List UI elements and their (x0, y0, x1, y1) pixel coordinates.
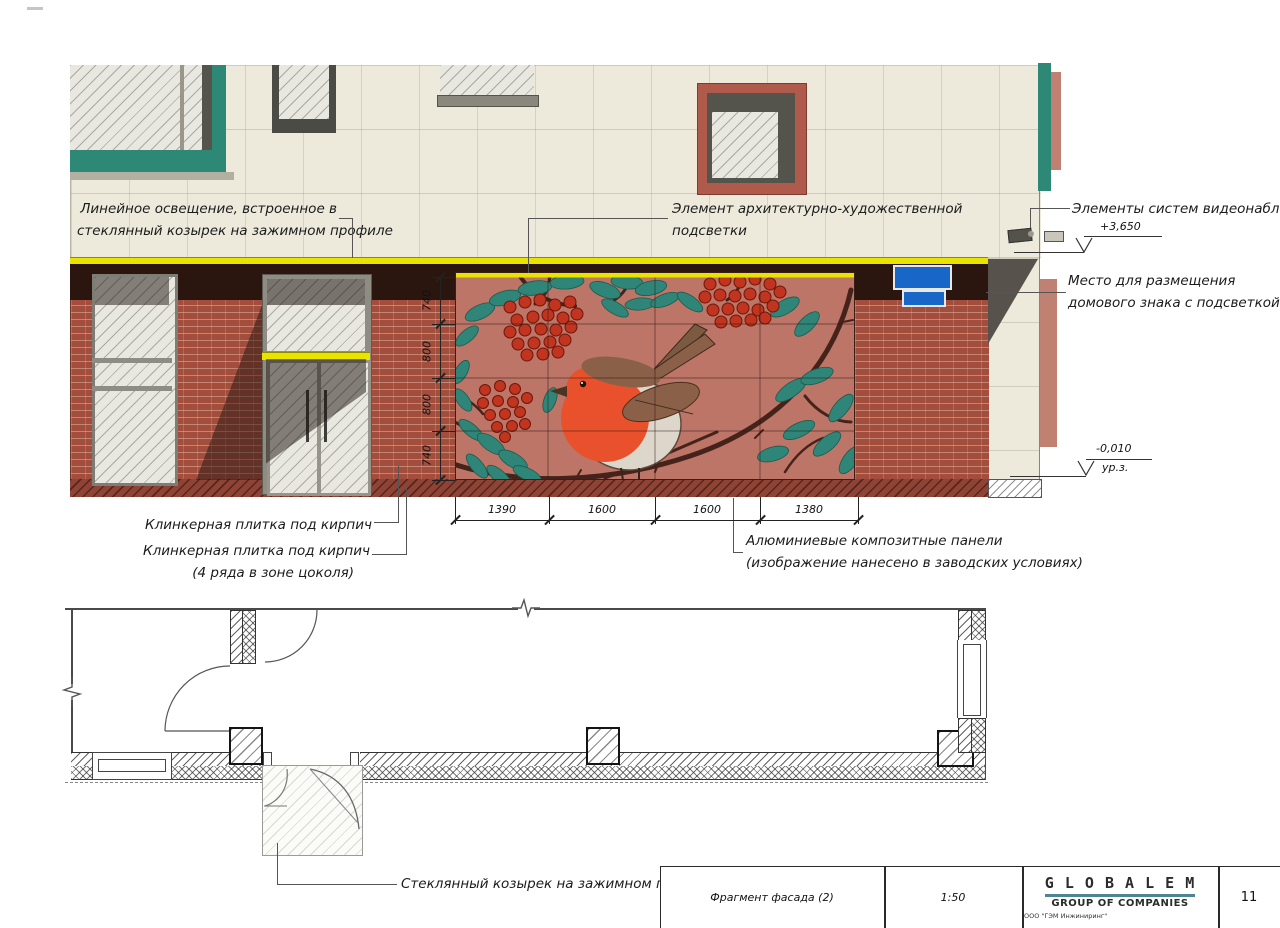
house-sign-plate-small (902, 290, 946, 307)
door-swing-arc-1 (254, 606, 324, 668)
level-ground-line (1010, 476, 1086, 477)
window-top-left-sill (70, 172, 234, 180)
dim-ext (432, 431, 455, 432)
logo-underline (1045, 894, 1195, 897)
window-small-glass (279, 65, 329, 119)
plan-window-bottom-frame (98, 759, 166, 772)
dim-ext (432, 378, 455, 379)
window-top-left-glass (70, 65, 195, 150)
logo-subtext: GROUP OF COMPANIES (1024, 898, 1216, 909)
plan-column (586, 727, 620, 765)
window-brick-left-divider1 (92, 358, 172, 363)
cctv-camera2-icon (1044, 231, 1064, 242)
window-brick-left-shadow (95, 277, 169, 305)
leader-alu-h (733, 552, 743, 553)
label-art-lighting: Элемент архитектурно-художественной подс… (672, 198, 962, 242)
teal-strip (1038, 63, 1051, 191)
dim-value-h3: 1600 (662, 503, 752, 516)
window-brick-left-divider2 (92, 386, 172, 391)
level-top-textline (1084, 236, 1162, 237)
window-top-left-frame-bottom (70, 150, 226, 172)
leader-art-v (528, 218, 529, 273)
mural-artwork (455, 272, 855, 480)
window-brick-left (92, 274, 178, 486)
titleblock-scale: 1:50 (886, 868, 1020, 926)
salmon-strip-mid (1040, 279, 1057, 447)
architectural-drawing-sheet: Линейное освещение, встроенное в стеклян… (0, 0, 1280, 928)
window-center-glass (440, 65, 534, 95)
level-top-value: +3,650 (1100, 220, 1141, 233)
label-linear-lighting: Линейное освещение, встроенное в стеклян… (77, 198, 337, 242)
level-ground-value: -0,010 (1096, 442, 1131, 455)
dim-ext (432, 480, 455, 481)
dim-value-h2: 1600 (557, 503, 647, 516)
cctv-camera-icon (1007, 228, 1032, 243)
house-sign-plate-large (893, 265, 952, 290)
logo-text: G L O B A L E M (1024, 874, 1216, 892)
level-top-line (1014, 252, 1084, 253)
plan-right-wall-seg (971, 610, 986, 642)
leader-linear-h (339, 218, 353, 219)
vestibule-door-arcs (262, 765, 362, 855)
leader-klinker2-v (406, 488, 407, 555)
leader-klinker1-h (374, 522, 399, 523)
door-swing-arc-2 (160, 660, 236, 736)
leader-canopy-v (277, 843, 278, 884)
plan-bottom-wall (360, 752, 985, 767)
level-ground-arrow-icon (1076, 459, 1096, 477)
plan-bottom-wall (170, 766, 263, 780)
label-klinker-top: Клинкерная плитка под кирпич (132, 514, 372, 536)
plan-bottom-wall (360, 766, 985, 780)
plan-window-right-frame (963, 644, 981, 716)
label-cctv: Элементы систем видеонаблюдения (1072, 198, 1280, 220)
titleblock-company: ООО "ГЭМ Инжиниринг" (1024, 912, 1216, 920)
leader-cctv-v (1030, 208, 1031, 228)
leader-art-h (528, 218, 668, 219)
dim-value-h4: 1380 (764, 503, 854, 516)
leader-house-sign (986, 292, 1066, 293)
window-red-glass (712, 112, 778, 178)
plan-bottom-wall (71, 752, 92, 767)
leader-canopy-h (277, 884, 397, 885)
label-klinker-socle: Клинкерная плитка под кирпич (4 ряда в з… (95, 540, 370, 584)
socle-hatch-strip (70, 479, 988, 497)
stray-mark (27, 7, 43, 10)
window-center-frame (437, 95, 539, 107)
leader-linear-v (352, 218, 353, 258)
leader-klinker1-v (398, 466, 399, 523)
dim-value-v4: 740 (421, 436, 434, 476)
titleblock-sheet-number: 11 (1220, 868, 1278, 926)
level-ground-sub: ур.з. (1102, 461, 1128, 474)
leader-cctv-h (1030, 208, 1070, 209)
break-symbol-left (60, 678, 84, 706)
entrance-canopy-lighting (262, 352, 370, 360)
ground-hatch-right (988, 479, 1042, 498)
entrance-transom-shadow (267, 279, 365, 305)
dim-value-h1: 1390 (457, 503, 547, 516)
leader-klinker2-h (372, 554, 407, 555)
break-symbol-top (512, 598, 540, 618)
dim-ext (432, 324, 455, 325)
plan-column (229, 727, 263, 765)
dim-value-v1: 740 (421, 281, 434, 321)
dim-value-v3: 800 (421, 385, 434, 425)
salmon-strip-top (1051, 72, 1061, 170)
plan-ground-dotted-line (65, 782, 988, 783)
label-house-sign: Место для размещения домового знака с по… (1068, 270, 1280, 314)
plan-right-wall-seg (971, 718, 986, 753)
titleblock-logo: G L O B A L E M GROUP OF COMPANIES ООО "… (1024, 870, 1216, 926)
canopy-lighting-line (70, 257, 988, 264)
dim-value-v2: 800 (421, 332, 434, 372)
dim-ext (432, 277, 455, 278)
label-alu-panels: Алюминиевые композитные панели (изображе… (746, 530, 1083, 574)
plan-bottom-wall (71, 766, 92, 780)
window-top-left-bevel (202, 65, 212, 158)
titleblock-drawing-title: Фрагмент фасада (2) (662, 868, 882, 926)
mural-panel (455, 272, 855, 480)
